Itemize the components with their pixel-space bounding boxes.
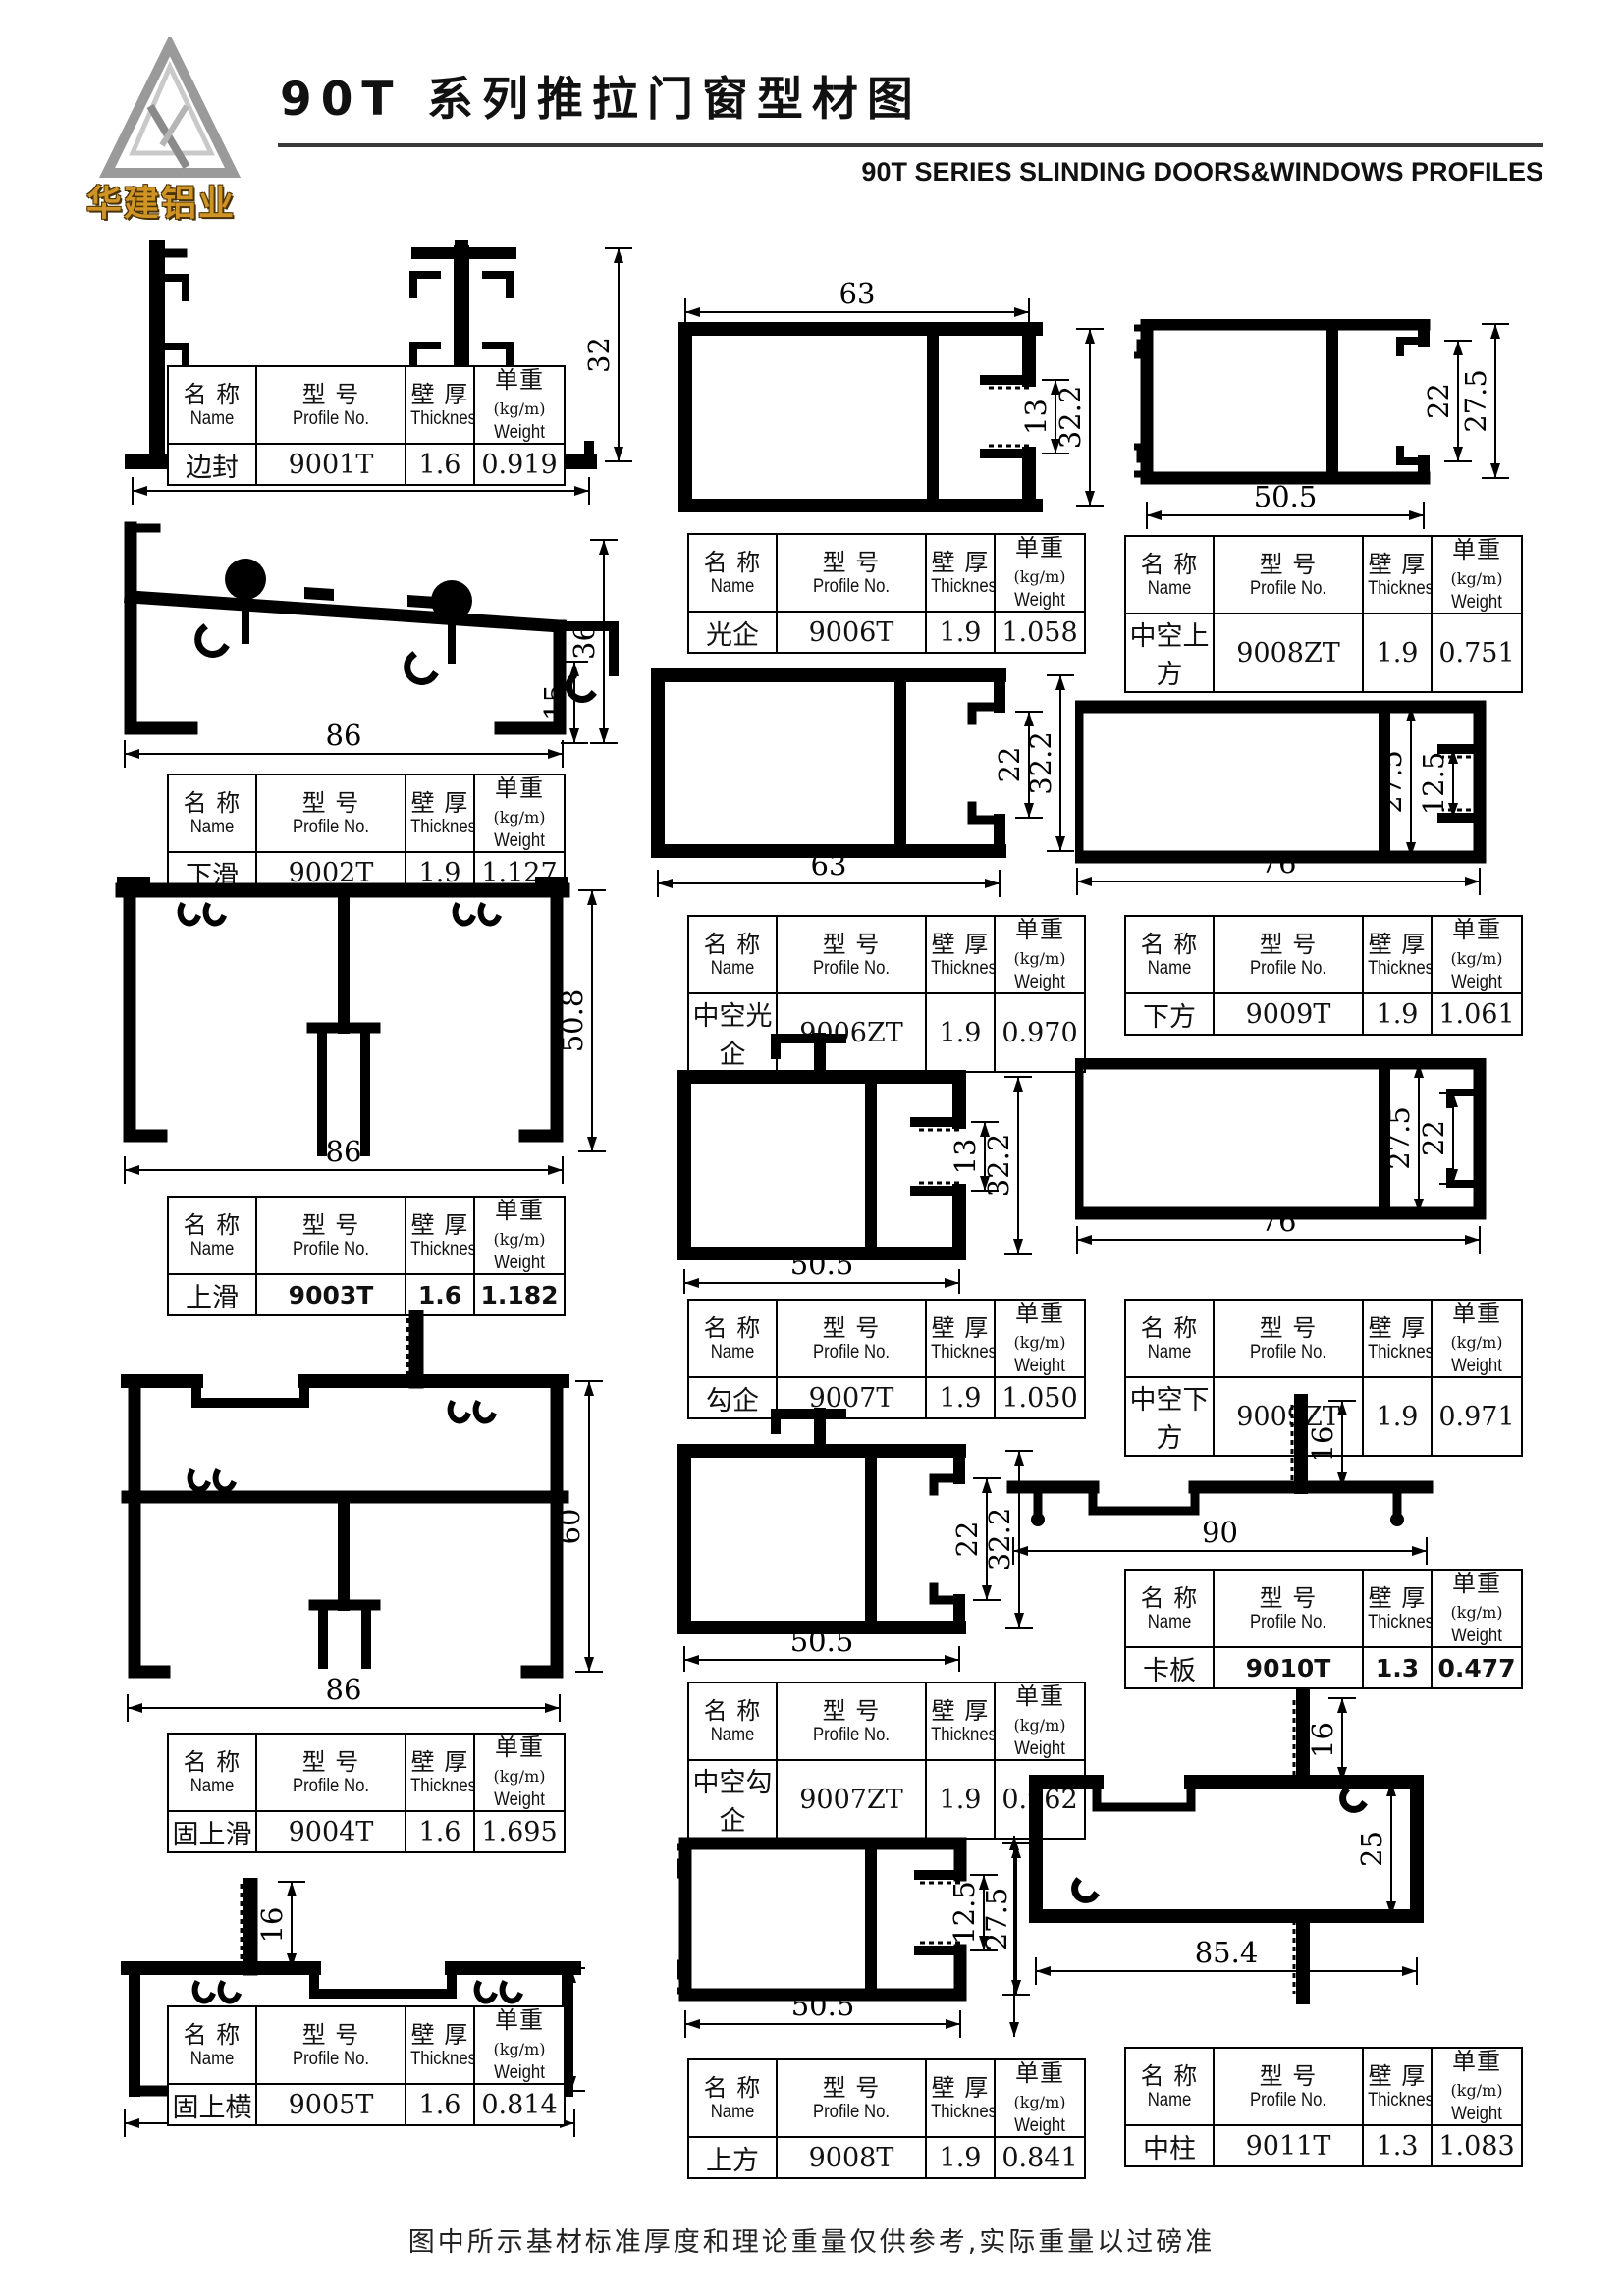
profile-thickness: 1.6 [406, 1811, 474, 1852]
profile-number: 9006T [777, 612, 926, 653]
dim-label: 86 [326, 1673, 362, 1706]
col-header-thickness: 壁 厚Thickness [1363, 536, 1432, 614]
profile-table-9005T: 名 称Name 型 号Profile No. 壁 厚Thickness 单重(k… [167, 2005, 566, 2126]
profile-name: 中空勾企 [688, 1760, 777, 1839]
col-header-name: 名 称Name [1125, 916, 1214, 993]
col-header-profile-no: 型 号Profile No. [777, 916, 926, 993]
profile-number: 9008ZT [1214, 614, 1363, 692]
col-header-name: 名 称Name [168, 774, 256, 852]
col-header-weight: 单重(kg/m) Weight [1432, 2048, 1522, 2125]
profile-thickness: 1.6 [406, 1274, 474, 1315]
dim-label: 32.2 [982, 1134, 1015, 1198]
profile-number: 9003T [256, 1274, 406, 1315]
profile-table-9003T: 名 称Name 型 号Profile No. 壁 厚Thickness 单重(k… [167, 1196, 566, 1316]
profile-number: 9011T [1214, 2125, 1363, 2166]
profile-weight: 1.695 [474, 1811, 565, 1852]
dim-label: 50.5 [791, 1989, 855, 2022]
profile-name: 中空上方 [1125, 614, 1214, 692]
col-header-thickness: 壁 厚Thickness [926, 916, 995, 993]
profile-thickness: 1.9 [1363, 993, 1432, 1035]
col-header-profile-no: 型 号Profile No. [777, 534, 926, 612]
profile-table-9011T: 名 称Name 型 号Profile No. 壁 厚Thickness 单重(k… [1124, 2047, 1523, 2167]
col-header-name: 名 称Name [688, 1300, 777, 1377]
profile-drawing-9009T: 7627.512.5 [1075, 692, 1605, 898]
profile-thickness: 1.3 [1363, 2125, 1432, 2166]
profile-thickness: 1.9 [926, 1760, 995, 1839]
dim-label: 86 [326, 1135, 362, 1168]
dim-label: 27.5 [1459, 369, 1492, 433]
dim-label: 16 [255, 1907, 289, 1944]
col-header-weight: 单重(kg/m) Weight [1432, 1570, 1522, 1647]
profile-weight: 0.841 [995, 2137, 1085, 2178]
col-header-profile-no: 型 号Profile No. [1214, 916, 1363, 993]
profile-drawing-9004T: 8660 [113, 1310, 687, 1728]
profile-number: 9008T [777, 2137, 926, 2178]
profile-name: 上滑 [168, 1274, 256, 1315]
col-header-weight: 单重(kg/m) Weight [1432, 916, 1522, 993]
dim-label: 13 [1019, 399, 1053, 435]
col-header-name: 名 称Name [1125, 2048, 1214, 2125]
profile-thickness: 1.6 [406, 2084, 474, 2125]
profile-drawing-9007T: 50.51332.2 [673, 1029, 1109, 1294]
dim-label: 12.5 [1417, 752, 1450, 816]
col-header-thickness: 壁 厚Thickness [406, 1197, 474, 1274]
profile-thickness: 1.9 [926, 2137, 995, 2178]
dim-label: 32.2 [1054, 386, 1087, 450]
col-header-profile-no: 型 号Profile No. [1214, 1570, 1363, 1647]
col-header-weight: 单重(kg/m) Weight [995, 916, 1085, 993]
col-header-name: 名 称Name [168, 2006, 256, 2084]
col-header-name: 名 称Name [688, 2059, 777, 2137]
dim-label: 76 [1261, 846, 1297, 880]
profile-number: 9007ZT [777, 1760, 926, 1839]
col-header-weight: 单重(kg/m) Weight [474, 774, 565, 852]
profile-number: 9004T [256, 1811, 406, 1852]
col-header-thickness: 壁 厚Thickness [926, 1682, 995, 1760]
profile-thickness: 1.9 [926, 612, 995, 653]
profile-data-row: 上滑 9003T 1.6 1.182 [168, 1274, 565, 1315]
col-header-profile-no: 型 号Profile No. [777, 1682, 926, 1760]
col-header-thickness: 壁 厚Thickness [406, 1734, 474, 1811]
col-header-profile-no: 型 号Profile No. [256, 366, 406, 444]
profiles-layer: 9032 名 称Name 型 号Profile No. 壁 厚Thickness… [0, 0, 1623, 2296]
dim-label: 76 [1261, 1204, 1297, 1238]
profile-data-row: 中空上方 9008ZT 1.9 0.751 [1125, 614, 1522, 692]
col-header-name: 名 称Name [1125, 1300, 1214, 1377]
profile-drawing-9010T: 9016 [1006, 1389, 1610, 1566]
dim-label: 60 [553, 1509, 586, 1545]
col-header-thickness: 壁 厚Thickness [1363, 1300, 1432, 1377]
col-header-profile-no: 型 号Profile No. [256, 774, 406, 852]
dim-label: 27.5 [1382, 1106, 1416, 1170]
dim-label: 50.5 [1254, 480, 1318, 513]
profile-thickness: 1.9 [1363, 614, 1432, 692]
col-header-weight: 单重(kg/m) Weight [1432, 1300, 1522, 1377]
dim-label: 63 [811, 848, 847, 881]
profile-table-9008T: 名 称Name 型 号Profile No. 壁 厚Thickness 单重(k… [687, 2058, 1086, 2179]
col-header-thickness: 壁 厚Thickness [406, 774, 474, 852]
profile-number: 9005T [256, 2084, 406, 2125]
col-header-profile-no: 型 号Profile No. [256, 1197, 406, 1274]
profile-name: 边封 [168, 444, 256, 485]
col-header-name: 名 称Name [1125, 536, 1214, 614]
col-header-name: 名 称Name [168, 1197, 256, 1274]
profile-weight: 1.061 [1432, 993, 1522, 1035]
profile-data-row: 边封 9001T 1.6 0.919 [168, 444, 565, 485]
profile-data-row: 光企 9006T 1.9 1.058 [688, 612, 1085, 653]
catalog-page: 华建铝业 90T 系列推拉门窗型材图 90T SERIES SLINDING D… [0, 0, 1623, 2296]
dim-label: 85.4 [1195, 1936, 1259, 1969]
profile-data-row: 下方 9009T 1.9 1.061 [1125, 993, 1522, 1035]
profile-weight: 1.058 [995, 612, 1085, 653]
col-header-thickness: 壁 厚Thickness [406, 2006, 474, 2084]
col-header-weight: 单重(kg/m) Weight [474, 1734, 565, 1811]
dim-label: 22 [950, 1522, 984, 1558]
profile-number: 9001T [256, 444, 406, 485]
profile-table-9004T: 名 称Name 型 号Profile No. 壁 厚Thickness 单重(k… [167, 1733, 566, 1853]
dim-label: 22 [993, 747, 1026, 783]
col-header-name: 名 称Name [688, 916, 777, 993]
col-header-thickness: 壁 厚Thickness [926, 1300, 995, 1377]
dim-label: 32 [582, 337, 616, 373]
dim-label: 90 [1202, 1516, 1238, 1549]
col-header-name: 名 称Name [1125, 1570, 1214, 1647]
profile-drawing-9006T: 631332.2 [673, 277, 1109, 522]
col-header-profile-no: 型 号Profile No. [777, 1300, 926, 1377]
profile-data-row: 上方 9008T 1.9 0.841 [688, 2137, 1085, 2178]
footer-note: 图中所示基材标准厚度和理论重量仅供参考,实际重量以过磅准 [408, 2220, 1216, 2259]
dim-label: 63 [839, 277, 876, 310]
col-header-thickness: 壁 厚Thickness [1363, 2048, 1432, 2125]
dim-label: 32.2 [1024, 731, 1057, 795]
col-header-weight: 单重(kg/m) Weight [1432, 536, 1522, 614]
profile-table-9008ZT: 名 称Name 型 号Profile No. 壁 厚Thickness 单重(k… [1124, 535, 1523, 693]
dim-label: 15 [538, 684, 571, 721]
col-header-thickness: 壁 厚Thickness [1363, 916, 1432, 993]
dim-label: 25 [1355, 1831, 1388, 1867]
profile-weight: 0.751 [1432, 614, 1522, 692]
profile-drawing-9011T: 85.42516 [1006, 1674, 1615, 2042]
profile-data-row: 中柱 9011T 1.3 1.083 [1125, 2125, 1522, 2166]
profile-table-9009T: 名 称Name 型 号Profile No. 壁 厚Thickness 单重(k… [1124, 915, 1523, 1036]
col-header-weight: 单重(kg/m) Weight [995, 2059, 1085, 2137]
dim-label: 50.8 [556, 989, 589, 1053]
profile-data-row: 固上横 9005T 1.6 0.814 [168, 2084, 565, 2125]
col-header-profile-no: 型 号Profile No. [777, 2059, 926, 2137]
col-header-profile-no: 型 号Profile No. [1214, 536, 1363, 614]
dim-label: 36 [568, 623, 601, 660]
dim-label: 22 [1417, 1120, 1450, 1156]
profile-drawing-9006ZT: 632232.2 [648, 653, 1100, 898]
dim-label: 86 [326, 719, 362, 752]
profile-weight: 0.814 [474, 2084, 565, 2125]
col-header-name: 名 称Name [688, 534, 777, 612]
col-header-name: 名 称Name [168, 1734, 256, 1811]
col-header-profile-no: 型 号Profile No. [256, 2006, 406, 2084]
profile-weight: 1.182 [474, 1274, 565, 1315]
col-header-thickness: 壁 厚Thickness [406, 366, 474, 444]
col-header-weight: 单重(kg/m) Weight [474, 2006, 565, 2084]
profile-data-row: 固上滑 9004T 1.6 1.695 [168, 1811, 565, 1852]
col-header-weight: 单重(kg/m) Weight [474, 1197, 565, 1274]
profile-drawing-9002T: 863615 [113, 510, 658, 768]
dim-label: 27.5 [1375, 750, 1408, 814]
dim-label: 16 [1306, 1426, 1339, 1463]
profile-name: 中柱 [1125, 2125, 1214, 2166]
dim-label: 12.5 [947, 1881, 981, 1945]
dim-label: 13 [948, 1139, 982, 1175]
col-header-profile-no: 型 号Profile No. [1214, 1300, 1363, 1377]
profile-table-9010T: 名 称Name 型 号Profile No. 壁 厚Thickness 单重(k… [1124, 1569, 1523, 1689]
profile-name: 光企 [688, 612, 777, 653]
col-header-thickness: 壁 厚Thickness [926, 534, 995, 612]
col-header-profile-no: 型 号Profile No. [256, 1734, 406, 1811]
profile-name: 上方 [688, 2137, 777, 2178]
profile-drawing-9008ZT: 50.52227.5 [1134, 319, 1600, 530]
profile-drawing-9003T: 8650.8 [113, 869, 658, 1193]
col-header-thickness: 壁 厚Thickness [926, 2059, 995, 2137]
col-header-weight: 单重(kg/m) Weight [474, 366, 565, 444]
profile-table-9001T: 名 称Name 型 号Profile No. 壁 厚Thickness 单重(k… [167, 365, 566, 486]
profile-table-9006T: 名 称Name 型 号Profile No. 壁 厚Thickness 单重(k… [687, 533, 1086, 654]
dim-label: 16 [1306, 1722, 1339, 1758]
dim-label: 50.5 [790, 1248, 854, 1281]
col-header-weight: 单重(kg/m) Weight [995, 1300, 1085, 1377]
col-header-profile-no: 型 号Profile No. [1214, 2048, 1363, 2125]
profile-weight: 1.083 [1432, 2125, 1522, 2166]
profile-number: 9009T [1214, 993, 1363, 1035]
col-header-thickness: 壁 厚Thickness [1363, 1570, 1432, 1647]
profile-name: 固上滑 [168, 1811, 256, 1852]
col-header-weight: 单重(kg/m) Weight [995, 534, 1085, 612]
col-header-name: 名 称Name [168, 366, 256, 444]
profile-drawing-9009ZT: 7627.522 [1075, 1058, 1605, 1255]
dim-label: 22 [1422, 383, 1455, 419]
profile-name: 下方 [1125, 993, 1214, 1035]
profile-thickness: 1.6 [406, 444, 474, 485]
profile-name: 固上横 [168, 2084, 256, 2125]
profile-weight: 0.919 [474, 444, 565, 485]
col-header-name: 名 称Name [688, 1682, 777, 1760]
dim-label: 50.5 [790, 1625, 854, 1658]
